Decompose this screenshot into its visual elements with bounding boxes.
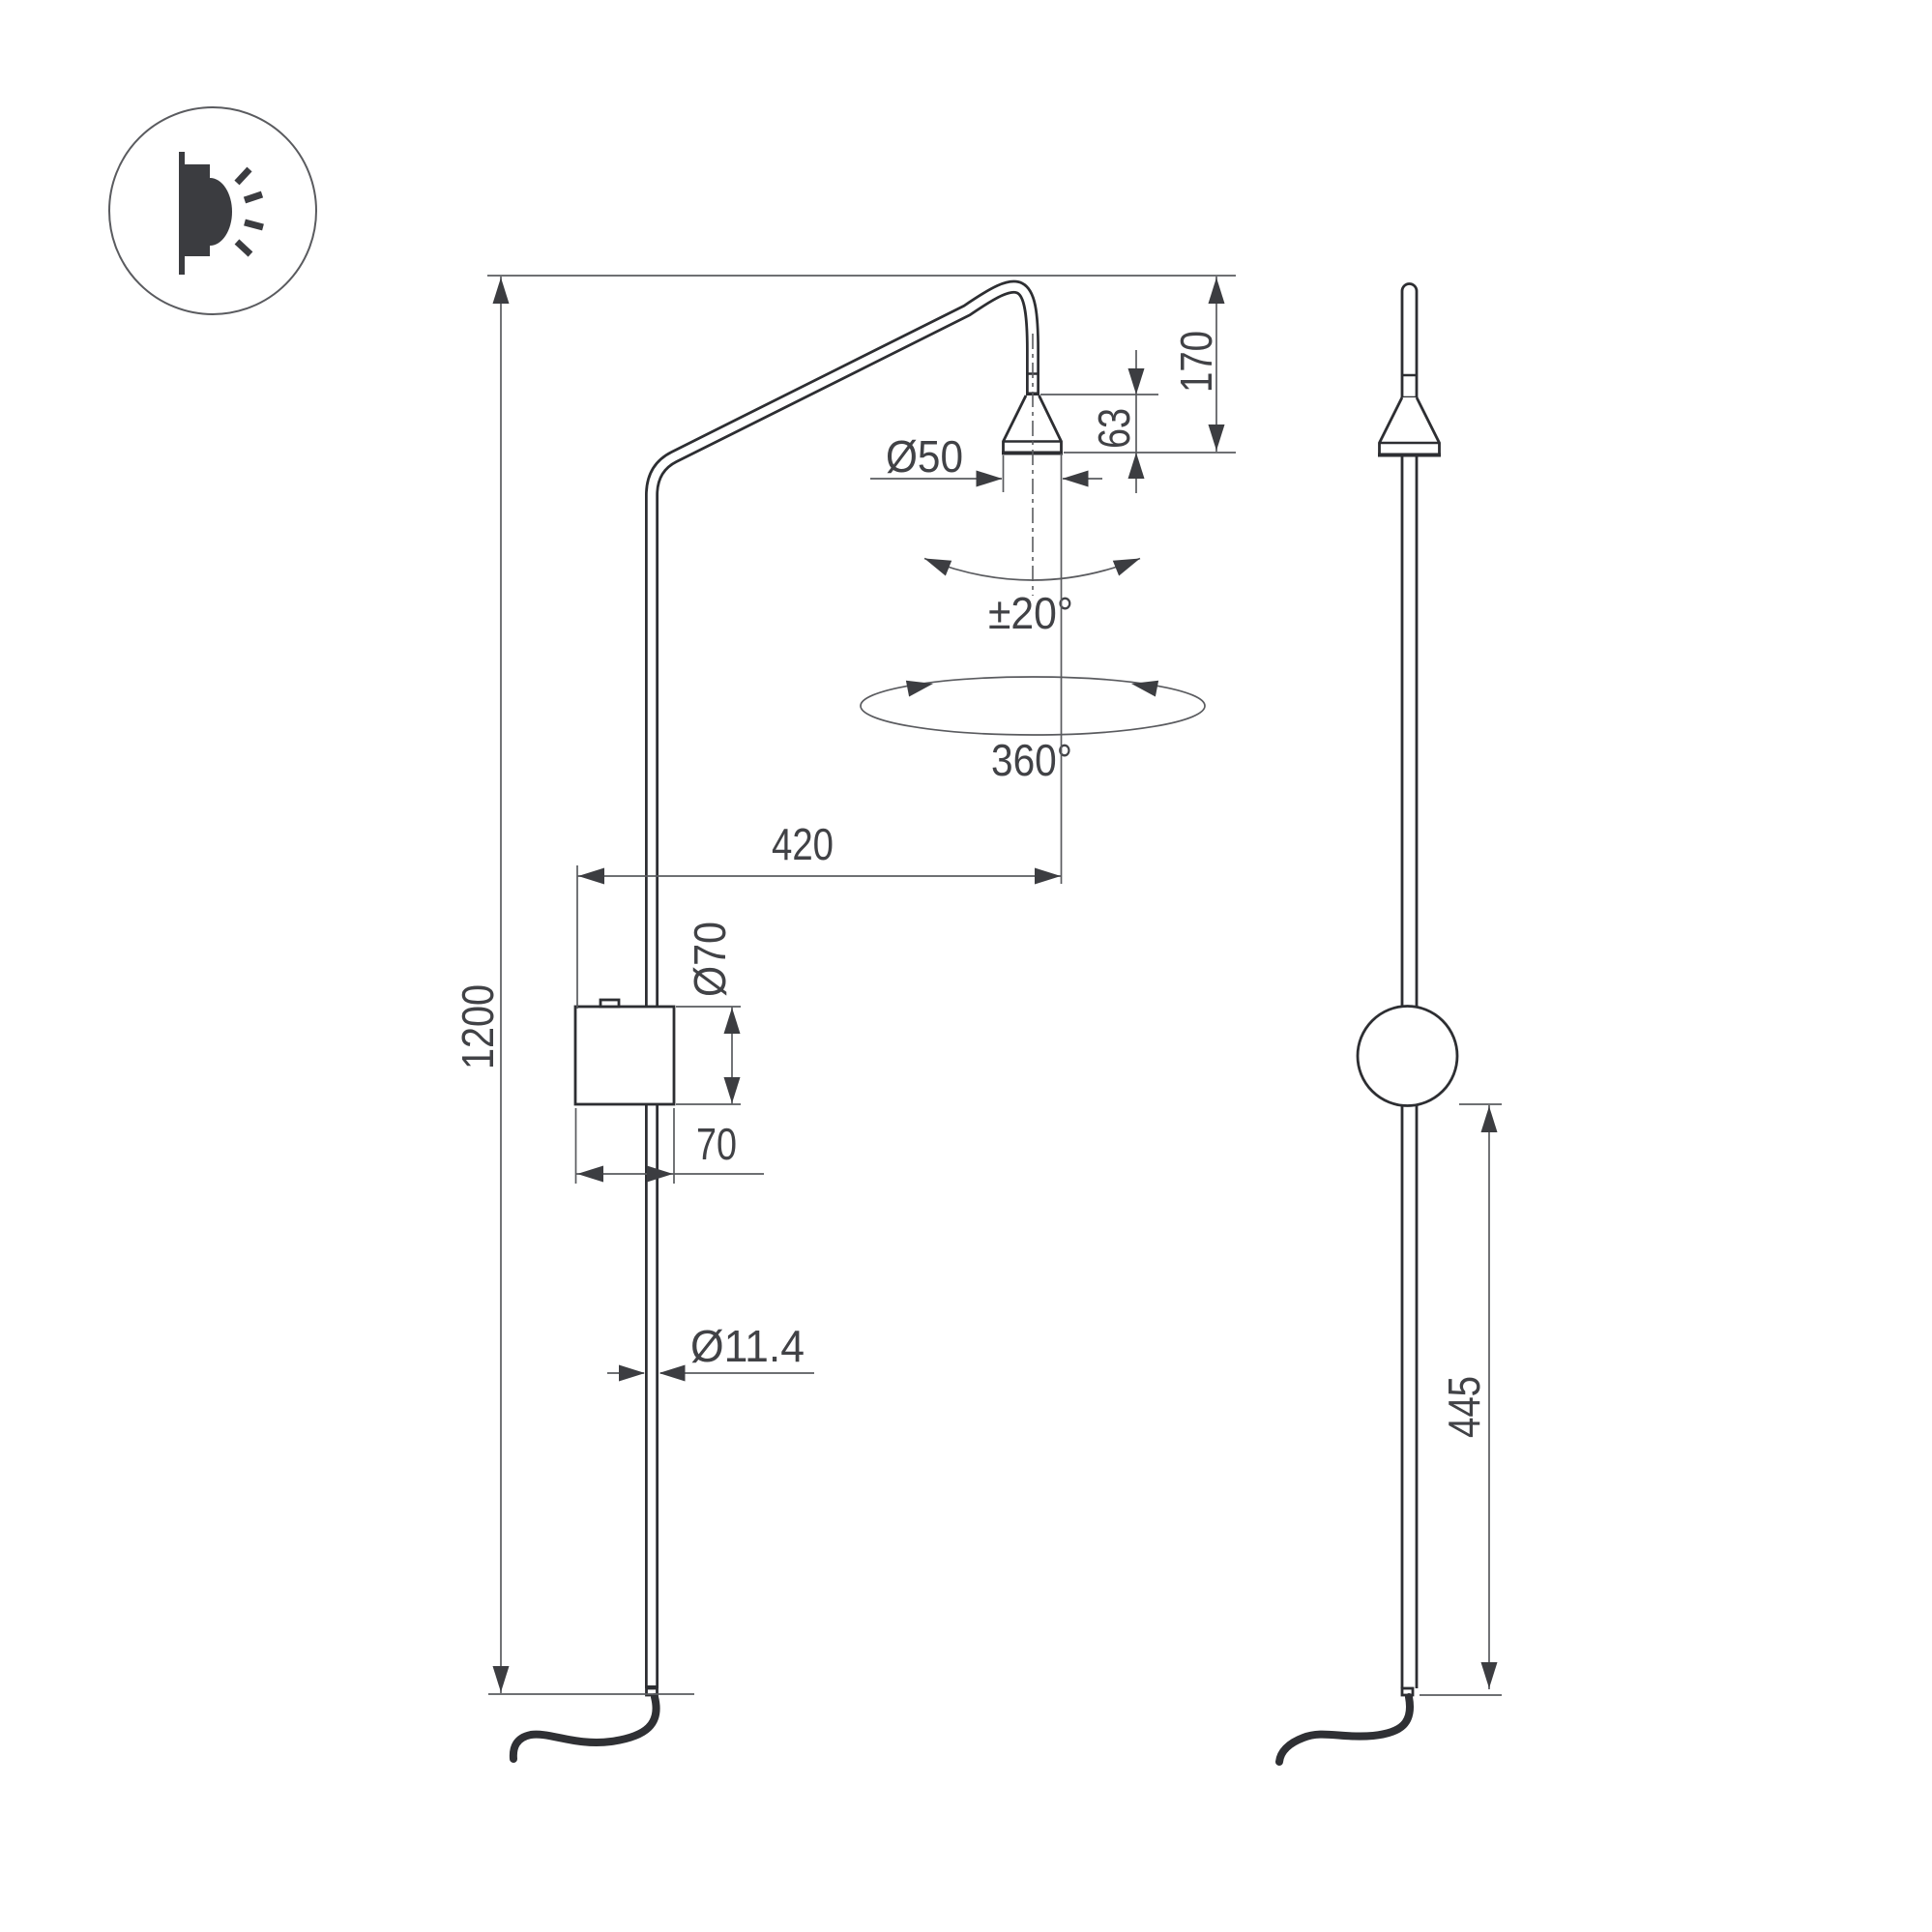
dim-label-o50: Ø50	[886, 431, 963, 482]
arrowhead	[1209, 424, 1225, 451]
arrowhead	[1128, 453, 1145, 479]
dim-rod-diameter: Ø11.4	[607, 1321, 814, 1382]
canopy-ball	[1358, 1007, 1457, 1106]
arrowhead	[724, 1077, 741, 1103]
icon-lamp-body	[184, 164, 210, 256]
canopy-nub	[600, 1000, 619, 1007]
dim-lower-height: 445	[1420, 1104, 1502, 1695]
drawing-canvas: 1200 170 63 Ø50	[0, 0, 1932, 1932]
dim-head-diameter: Ø50	[870, 431, 1102, 492]
rod	[1402, 284, 1417, 1689]
arrowhead	[1128, 368, 1145, 395]
dim-tilt-range: ±20°	[922, 551, 1143, 638]
arrowhead	[724, 1008, 741, 1034]
icon-ray-3	[245, 222, 263, 227]
dimensions-side: 445	[1420, 1104, 1502, 1695]
dim-label-rotation: 360°	[991, 735, 1072, 785]
dimensions-front: 1200 170 63 Ø50	[453, 276, 1236, 1694]
arrowhead	[906, 676, 935, 697]
dim-label-170: 170	[1171, 331, 1221, 393]
canopy-box	[575, 1007, 674, 1104]
dim-label-o114: Ø11.4	[690, 1321, 805, 1371]
arrowhead	[577, 1166, 603, 1183]
arrowhead	[1481, 1662, 1498, 1688]
arrowhead	[619, 1365, 645, 1382]
front-view	[513, 287, 1063, 1759]
arrowhead	[659, 1365, 686, 1382]
arrowhead	[1113, 551, 1143, 576]
arrowhead	[647, 1166, 673, 1183]
arrowhead	[493, 278, 510, 304]
dim-canopy-diameter: Ø70	[676, 922, 741, 1104]
arrowhead	[578, 868, 604, 885]
dim-label-63: 63	[1089, 408, 1139, 449]
arrowhead	[977, 471, 1003, 487]
lamp-cone-side	[1380, 397, 1440, 454]
arrowhead	[1129, 676, 1158, 697]
arrowhead	[1063, 471, 1089, 487]
dim-head-height: 63	[1040, 350, 1158, 493]
arrowhead	[1209, 278, 1225, 304]
power-cord	[513, 1697, 657, 1759]
dim-label-70: 70	[696, 1119, 737, 1169]
power-cord-side	[1279, 1697, 1410, 1762]
dim-rotation-range: 360°	[861, 676, 1205, 785]
side-view	[1279, 284, 1457, 1763]
dim-label-420: 420	[772, 819, 834, 869]
dim-canopy-width: 70	[576, 1108, 765, 1184]
arrowhead	[922, 551, 951, 576]
arrowhead	[1035, 868, 1061, 885]
wall-light-emission-icon	[109, 107, 316, 314]
dim-label-o70: Ø70	[685, 922, 735, 997]
arrowhead	[493, 1666, 510, 1692]
arrowhead	[1481, 1106, 1498, 1132]
dim-pole-height: 1200	[453, 277, 510, 1693]
dim-label-1200: 1200	[453, 984, 503, 1069]
dimension-drawing: 1200 170 63 Ø50	[0, 0, 1932, 1932]
dim-label-445: 445	[1439, 1376, 1489, 1438]
